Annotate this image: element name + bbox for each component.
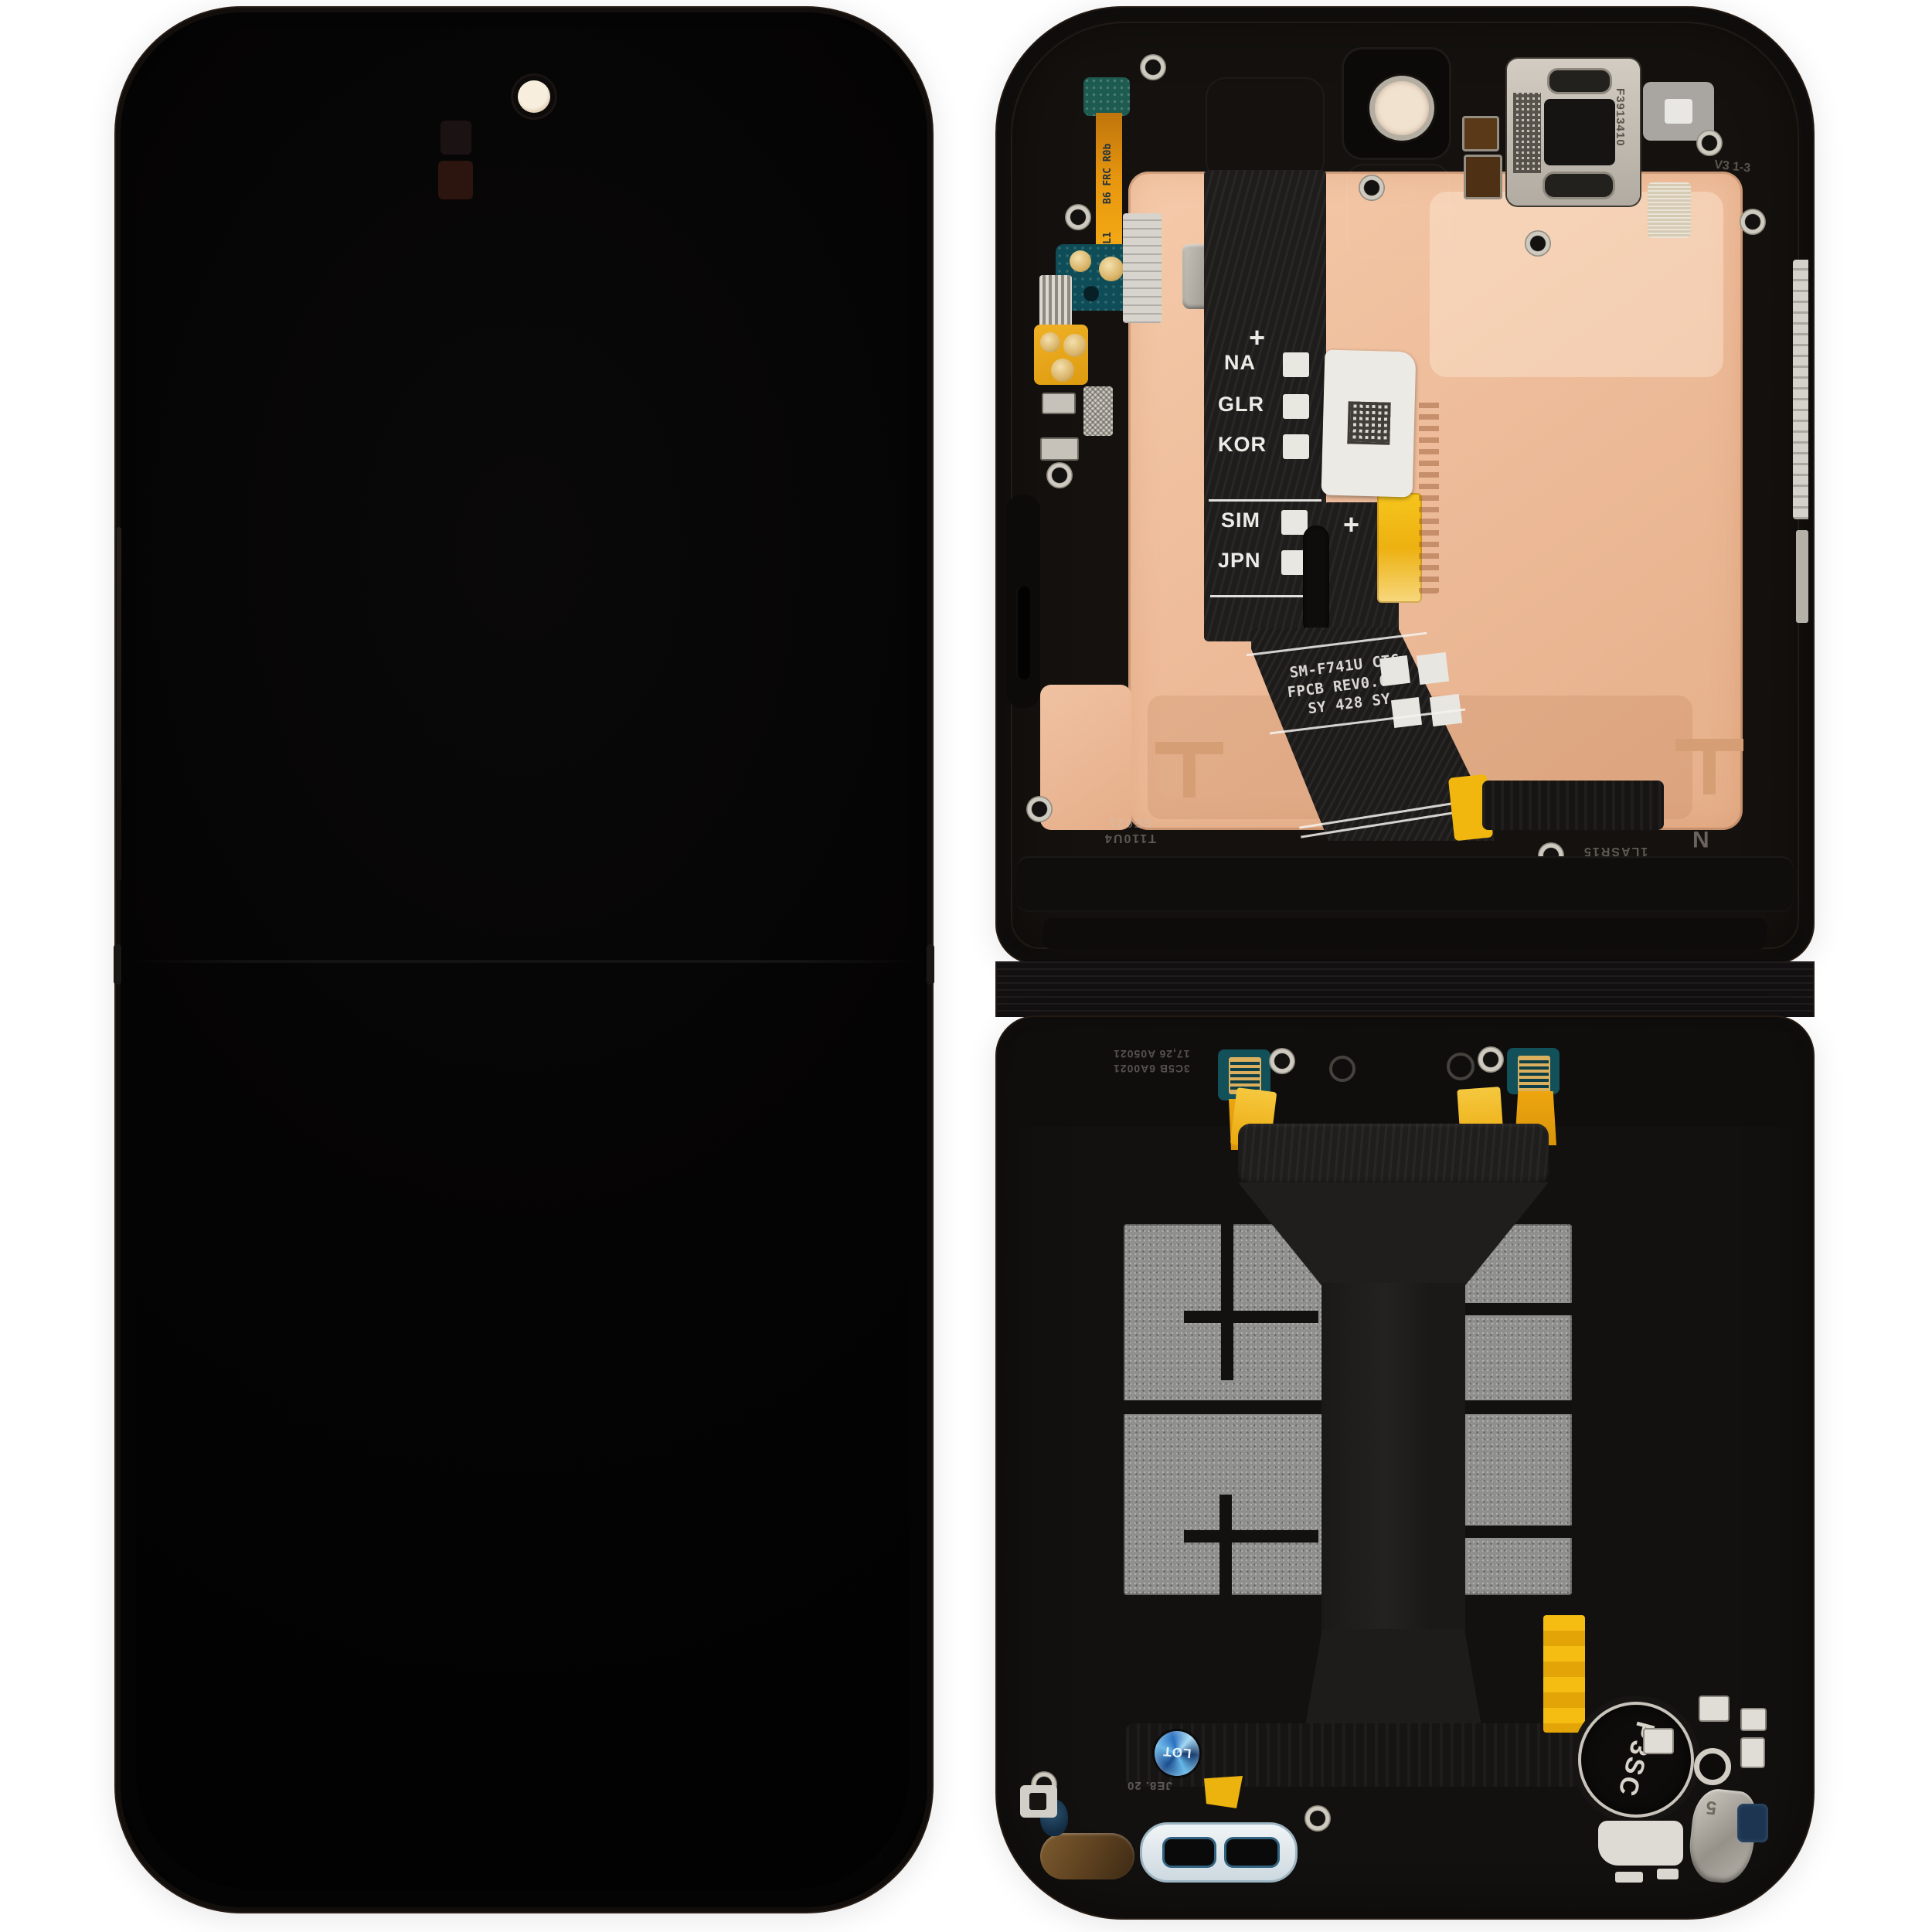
sensor-window-upper <box>1462 116 1499 151</box>
pcb-hole <box>1083 286 1099 301</box>
front-screen <box>136 28 909 1889</box>
white-smd-chip <box>1643 1728 1674 1754</box>
top-frame-strip <box>1017 1031 1793 1127</box>
flex-pcb-top <box>1083 77 1130 116</box>
punch-hole-camera <box>518 80 550 113</box>
frame-date-code: JE8. 20 <box>1127 1779 1172 1792</box>
flex-fold-band <box>1482 781 1664 830</box>
gold-flex-patch <box>1034 325 1088 385</box>
screw-hole <box>1269 1048 1295 1074</box>
screen-sticker-faint <box>440 121 471 155</box>
bracket-stamped-digit: 5 <box>1705 1796 1717 1818</box>
earpiece-serial-code: F3913410 <box>1614 88 1627 189</box>
white-smd-chip <box>1699 1696 1730 1722</box>
white-smd-chip <box>1740 1708 1767 1731</box>
frame-letter-n: N <box>1692 825 1709 852</box>
front-camera-housing <box>1344 49 1449 158</box>
p3sc-stamp-text: P3SC <box>1569 1692 1703 1827</box>
screw-hole <box>1696 130 1723 156</box>
silver-chip <box>1042 393 1076 414</box>
main-flex-vertical-band <box>1321 1283 1465 1632</box>
phone-back-top-half: F3913410 V3 1-3 B6 FRC R0b HF DS 4 7SL1 <box>995 6 1815 964</box>
white-smd-chip <box>1740 1737 1765 1768</box>
copper-t-mark-right-stem <box>1703 739 1716 794</box>
holographic-lot-sticker: LOT <box>1155 1731 1199 1776</box>
hinge-bridge <box>995 961 1815 1017</box>
flex-checkbox-kor <box>1283 434 1309 459</box>
flex-region-label-jpn: JPN <box>1218 549 1261 573</box>
screw-hole <box>1046 462 1073 488</box>
copper-patch-left <box>1040 685 1131 830</box>
kapton-tape-small <box>1204 1776 1243 1808</box>
silver-chip <box>1040 437 1079 461</box>
gold-contact-pad <box>1051 359 1074 382</box>
graphite-cross-cutout <box>1221 1224 1233 1380</box>
frame-etched-code: T110U4 SE021 <box>1104 815 1156 845</box>
copper-t-mark-left-stem <box>1183 742 1196 798</box>
edge-pad-strip <box>1793 260 1808 519</box>
flex-code-top: B6 FRC R0b <box>1102 117 1114 204</box>
gold-contact-pad <box>1070 250 1091 272</box>
embossed-v3-mark: V3 1-3 <box>1695 156 1767 217</box>
screw-hole <box>1140 54 1166 80</box>
screw-hole <box>1740 209 1766 235</box>
white-smd-chip-small <box>1657 1869 1679 1879</box>
sensor-window-lower <box>1464 155 1502 199</box>
mesh-shield-pad <box>1083 386 1113 436</box>
graphite-cross-cutout <box>1184 1311 1318 1323</box>
bottom-code-line2: 17,26 A05021 <box>1113 1046 1190 1061</box>
blue-component <box>1737 1804 1768 1842</box>
open-screw-ring <box>1329 1056 1355 1082</box>
kapton-tape <box>1377 493 1422 603</box>
flex-checkbox-na <box>1283 352 1309 377</box>
silver-pad-column <box>1123 213 1162 323</box>
flex-checkbox-glr <box>1283 394 1309 419</box>
main-flex-crossbar <box>1238 1124 1549 1185</box>
product-photo-zflip-display-assembly: F3913410 V3 1-3 B6 FRC R0b HF DS 4 7SL1 <box>0 0 1932 1932</box>
main-flex-flare <box>1304 1629 1482 1730</box>
flex-region-label-na: NA <box>1224 351 1256 375</box>
screw-hole <box>1065 204 1091 230</box>
side-button-slot <box>1016 586 1030 680</box>
bronze-contact-pad <box>1040 1833 1134 1879</box>
qr-datamatrix <box>1347 401 1390 444</box>
frame-code-a: T110U4 <box>1104 830 1156 845</box>
gold-contact-pad <box>1063 334 1087 357</box>
datamatrix-code <box>1513 93 1541 173</box>
flex-white-square <box>1417 652 1449 685</box>
flex-divider-line <box>1209 499 1321 502</box>
gold-contact-grid <box>1518 1056 1550 1093</box>
hinge-rail <box>117 527 121 881</box>
screw-hole <box>1026 796 1053 822</box>
earpiece-slot-top <box>1547 68 1612 94</box>
lot-sticker-text: LOT <box>1154 1743 1200 1762</box>
copper-etched-text-column <box>1419 399 1439 594</box>
flex-region-label-kor: KOR <box>1218 433 1267 457</box>
p3sc-stamp-circle: P3SC <box>1578 1702 1694 1818</box>
white-smd-chip-small <box>1615 1872 1643 1883</box>
gasket-opening <box>1224 1837 1280 1868</box>
earpiece-center-window <box>1544 99 1615 165</box>
bottom-code-line1: 3C5B 6A0021 <box>1113 1061 1190 1076</box>
edge-pad-strip-lower <box>1796 530 1808 623</box>
earpiece-slot-bottom <box>1543 172 1615 199</box>
front-camera-lens-opening <box>1369 76 1434 141</box>
bracket-window <box>1029 1793 1046 1810</box>
speaker-gasket <box>1140 1822 1298 1883</box>
gray-sticker-window <box>1665 99 1692 124</box>
frame-etched-code-bottom-half: 3C5B 6A0021 17,26 A05021 <box>1113 1046 1190 1076</box>
flex-connector-pcb-right <box>1507 1048 1560 1094</box>
fabric-sticker <box>1648 182 1691 238</box>
flex-checkbox-sim <box>1281 510 1308 535</box>
side-button-rubber <box>1006 495 1040 708</box>
white-sticker-bottom <box>1598 1821 1683 1866</box>
flex-slot-cutout <box>1303 526 1329 635</box>
bottom-frame-lip-inner <box>1043 918 1767 949</box>
corrugated-shield-pad <box>1039 275 1072 331</box>
hinge-notch-right <box>927 944 934 985</box>
fold-crease <box>131 960 917 963</box>
phone-back-bottom-half: 3C5B 6A0021 17,26 A05021 JE8. 20 <box>995 1015 1815 1920</box>
silver-screw-ring <box>1694 1748 1731 1785</box>
hinge-notch-left <box>114 944 121 985</box>
flex-region-label-sim: SIM <box>1221 509 1260 532</box>
white-label-sticker <box>1321 349 1417 497</box>
frame-mold-outline <box>1206 77 1325 181</box>
earpiece-speaker-module: F3913410 <box>1507 59 1640 206</box>
screw-hole <box>1304 1805 1331 1832</box>
gold-contact-pad <box>1040 332 1060 352</box>
flex-white-square <box>1391 697 1422 728</box>
flex-plus-mark-mid: + <box>1343 509 1359 541</box>
kapton-tape-vertical <box>1543 1615 1585 1733</box>
phone-front-view <box>114 6 934 1913</box>
flex-region-label-glr: GLR <box>1218 393 1264 417</box>
screw-hole <box>1359 175 1385 201</box>
gold-contact-pad <box>1099 257 1124 281</box>
screw-hole <box>1525 230 1551 257</box>
open-screw-ring <box>1447 1053 1475 1080</box>
white-bracket <box>1020 1785 1057 1818</box>
screw-hole <box>1478 1046 1504 1073</box>
screen-sticker-faint-red <box>438 161 473 199</box>
flex-white-square <box>1379 655 1410 686</box>
bottom-frame-lip <box>1017 856 1793 912</box>
flex-plus-mark-top: + <box>1249 321 1265 354</box>
graphite-cross-cutout <box>1219 1495 1232 1595</box>
frame-code-b: SE021 <box>1104 815 1156 830</box>
graphite-cross-cutout <box>1184 1530 1318 1543</box>
gasket-opening <box>1162 1837 1216 1868</box>
